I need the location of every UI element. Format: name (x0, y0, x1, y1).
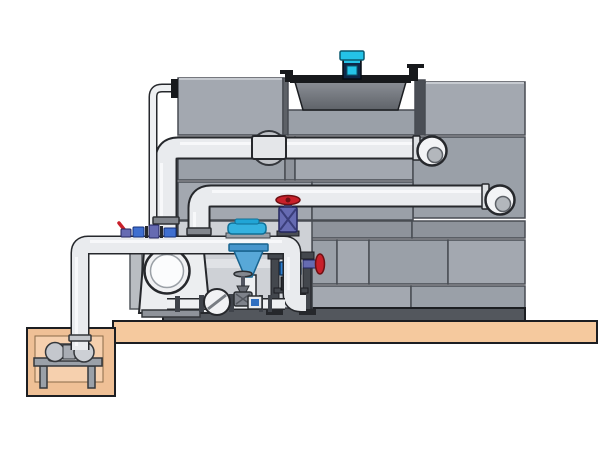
riser-collar (187, 228, 211, 235)
side-valve-stem (303, 260, 316, 268)
sump-pipe-coupling (69, 335, 91, 341)
ball-valve-body (121, 229, 131, 237)
gate-valve-stem (241, 276, 245, 286)
fan-cowl (295, 82, 406, 110)
filter-cap-top (235, 219, 259, 224)
panel (369, 240, 448, 284)
motor-window (347, 66, 357, 75)
manifold-flange (268, 295, 272, 312)
thin-pipe-flange (171, 79, 178, 98)
deck-curb-right (409, 67, 418, 81)
filter-cap (228, 223, 266, 234)
pump-foot (142, 310, 200, 317)
concrete-slab (113, 321, 597, 343)
handwheel-hub (286, 198, 291, 203)
cooling-tower-diagram (0, 0, 600, 450)
sump-pump-motor (46, 343, 65, 362)
deck-curb-left (285, 73, 293, 82)
dosing-fitting (149, 225, 159, 238)
panel (312, 286, 411, 308)
fitting-flange (145, 226, 148, 238)
pump-suction-eye (151, 255, 184, 288)
side-handwheel (316, 254, 325, 274)
fan-motor-cap (340, 51, 364, 60)
filter-flange (229, 244, 268, 251)
panel (412, 221, 525, 238)
panel-highlight (179, 78, 282, 80)
fitting-flange (160, 226, 163, 238)
manifold-flange (175, 296, 180, 312)
dosing-fitting (133, 227, 144, 237)
dosing-fitting (164, 228, 176, 237)
panel (178, 78, 283, 135)
panel (425, 82, 525, 135)
pipe-sleeve (252, 136, 286, 159)
ground (27, 321, 597, 396)
fan-deck-band (288, 110, 418, 135)
panel (337, 240, 369, 284)
panel (448, 240, 525, 284)
diagram-canvas (0, 0, 600, 450)
instrument-window (251, 299, 259, 306)
panel (411, 286, 525, 308)
stand-leg (88, 366, 95, 388)
panel-highlight (426, 82, 524, 84)
panel-edge (415, 80, 425, 135)
elbow-bore (496, 197, 511, 212)
riser-collar (153, 217, 179, 224)
elbow-bore (428, 148, 443, 163)
gate-valve-handle (234, 271, 252, 277)
fan-assembly (280, 51, 424, 110)
stand-leg (40, 366, 47, 388)
